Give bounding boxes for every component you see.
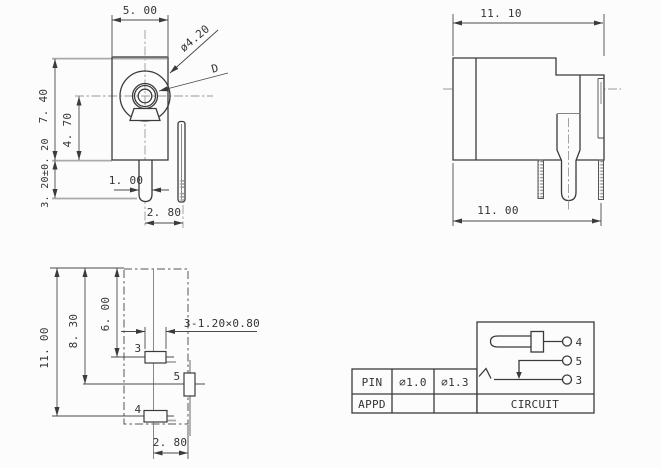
pad-4 bbox=[144, 411, 167, 423]
dim-1.00-label: 1. 00 bbox=[109, 174, 144, 187]
table-cell-pin: PIN bbox=[362, 376, 383, 389]
dim-2.80-front-label: 2. 80 bbox=[147, 206, 182, 219]
barrel-key-notch bbox=[130, 109, 160, 121]
pad-5 bbox=[184, 373, 195, 396]
circuit-diagram: CIRCUIT 4 5 3 bbox=[477, 322, 594, 413]
bottom-view: 3 5 4 3-1.20×0.80 11. 00 8. 30 6. 00 2. … bbox=[38, 268, 260, 459]
side-view: 11. 10 11. 00 bbox=[443, 7, 621, 226]
side-left-pin bbox=[538, 160, 544, 199]
pad-3 bbox=[145, 352, 166, 364]
leader-barrel-dia-label: ø4.20 bbox=[177, 22, 212, 54]
dim-7.40-label: 7. 40 bbox=[37, 89, 50, 124]
pin5-label: 5 bbox=[576, 355, 583, 368]
dim-2.80-bottom-label: 2. 80 bbox=[153, 436, 188, 449]
pad-5-label: 5 bbox=[174, 370, 181, 383]
dim-11.00-bottom-label: 11. 00 bbox=[38, 327, 51, 369]
dim-8.30-label: 8. 30 bbox=[67, 314, 80, 349]
engineering-drawing-dc-jack: 5. 00 7. 40 4. 70 3. 20±0. 20 1. 00 2. 8… bbox=[0, 0, 662, 468]
dim-4.70-label: 4. 70 bbox=[61, 113, 74, 148]
dim-11.10-label: 11. 10 bbox=[480, 7, 522, 20]
leader-pin-dia-label: D bbox=[210, 61, 220, 75]
pin4-label: 4 bbox=[576, 336, 583, 349]
spec-table: PIN ∅1.0 ∅1.3 APPD bbox=[352, 369, 477, 413]
slot-spec-label: 3-1.20×0.80 bbox=[184, 317, 260, 330]
dim-3.20-label: 3. 20±0. 20 bbox=[40, 138, 51, 208]
plug-body-symbol bbox=[531, 332, 544, 353]
table-cell-dia-1.0: ∅1.0 bbox=[399, 376, 427, 389]
dim-11.00-side-label: 11. 00 bbox=[477, 204, 519, 217]
pin3-label: 3 bbox=[576, 374, 583, 387]
side-right-pin bbox=[599, 160, 604, 200]
pad-3-label: 3 bbox=[135, 342, 142, 355]
pad-4-label: 4 bbox=[135, 403, 142, 416]
side-tab-hatch-2 bbox=[179, 192, 184, 201]
table-cell-appd: APPD bbox=[358, 398, 386, 411]
drawing-sheet: 5. 00 7. 40 4. 70 3. 20±0. 20 1. 00 2. 8… bbox=[0, 0, 662, 468]
table-cell-dia-1.3: ∅1.3 bbox=[441, 376, 469, 389]
front-view: 5. 00 7. 40 4. 70 3. 20±0. 20 1. 00 2. 8… bbox=[37, 4, 228, 228]
dim-5.00-label: 5. 00 bbox=[123, 4, 158, 17]
dim-6.00-label: 6. 00 bbox=[99, 297, 112, 332]
circuit-title: CIRCUIT bbox=[511, 398, 560, 411]
side-tab-hatch-1 bbox=[179, 180, 184, 188]
leader-pin-dia bbox=[159, 73, 228, 91]
